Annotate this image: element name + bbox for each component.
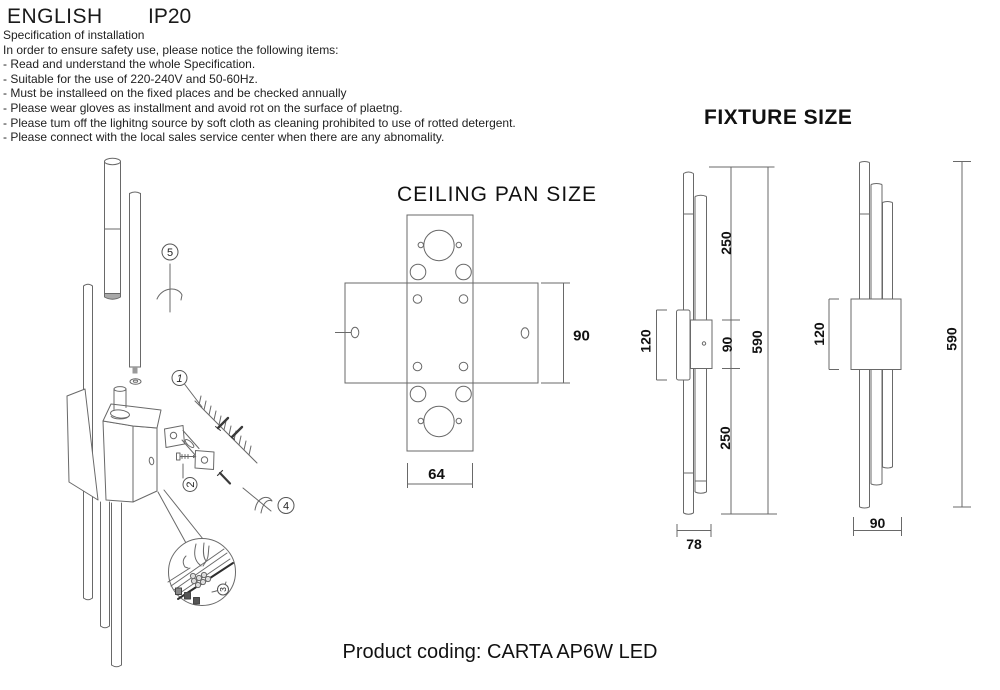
mounting-holes	[335, 230, 529, 436]
spec-intro: In order to ensure safety use, please no…	[3, 43, 516, 58]
dim-height: 90	[541, 283, 590, 383]
screw-icon	[177, 453, 197, 460]
lamp-tube-thin	[130, 192, 142, 384]
step-4-badge: 4	[278, 498, 294, 514]
step-2-label: 2	[185, 481, 197, 487]
spec-line: - Read and understand the whole Specific…	[3, 57, 516, 72]
step-1-badge: 1	[172, 371, 187, 386]
step-4-label: 4	[283, 500, 289, 512]
dim-front-120: 120	[811, 322, 827, 346]
specification-text: Specification of installation In order t…	[3, 28, 516, 145]
ceiling-plate-outline	[345, 215, 538, 451]
dim-side-590: 590	[749, 330, 765, 354]
dim-width-label: 64	[428, 466, 445, 483]
step-3-label: 3	[218, 587, 228, 592]
spec-line: - Suitable for the use of 220-240V and 5…	[3, 72, 516, 87]
fixture-size-diagram: 120 250 90 250 590 78	[635, 140, 980, 560]
spec-line: - Please tum off the lighitng source by …	[3, 116, 516, 131]
screw-diagonal-icon	[218, 471, 231, 484]
spec-line: - Must be installeed on the fixed places…	[3, 86, 516, 101]
installation-spec-sheet: ENGLISH IP20 Specification of installati…	[0, 0, 1000, 690]
spec-line: - Please connect with the local sales se…	[3, 130, 516, 145]
lamp-tubes-lower	[101, 502, 122, 667]
mounting-box	[67, 387, 161, 502]
ceiling-pan-size-title: CEILING PAN SIZE	[397, 183, 597, 207]
dim-side-120: 120	[637, 329, 653, 353]
lamp-tube-thick	[105, 158, 121, 299]
dim-side-250-upper: 250	[718, 231, 734, 255]
dim-width: 64	[408, 463, 473, 488]
wiring-detail-magnifier: 3	[158, 490, 236, 606]
fixture-size-title: FIXTURE SIZE	[704, 106, 852, 130]
ceiling-pan-diagram: 90 64	[330, 205, 590, 495]
step-5-label: 5	[167, 247, 173, 259]
mounting-bracket	[165, 426, 215, 470]
dim-height-label: 90	[573, 327, 590, 344]
language-label: ENGLISH	[7, 5, 103, 29]
installation-diagram: 5 1	[40, 150, 320, 670]
dim-front-90: 90	[870, 515, 886, 531]
ip-rating-label: IP20	[148, 5, 191, 29]
step-2-badge: 2	[183, 478, 197, 492]
spec-line: - Please wear gloves as installment and …	[3, 101, 516, 116]
step-5-badge: 5	[162, 244, 178, 260]
leader-line	[243, 488, 271, 511]
step-1-label: 1	[176, 373, 182, 385]
product-coding: Product coding: CARTA AP6W LED	[290, 641, 710, 664]
rotation-arrow-icon	[157, 264, 182, 312]
step-3-badge: 3	[218, 584, 229, 595]
dim-side-78: 78	[686, 536, 702, 552]
fixture-side-view	[677, 172, 713, 514]
fixture-front-view	[851, 162, 901, 509]
spec-title: Specification of installation	[3, 28, 516, 43]
dim-front-590: 590	[943, 327, 959, 351]
dim-side-250-lower: 250	[717, 426, 733, 450]
dim-side-90: 90	[719, 337, 735, 353]
